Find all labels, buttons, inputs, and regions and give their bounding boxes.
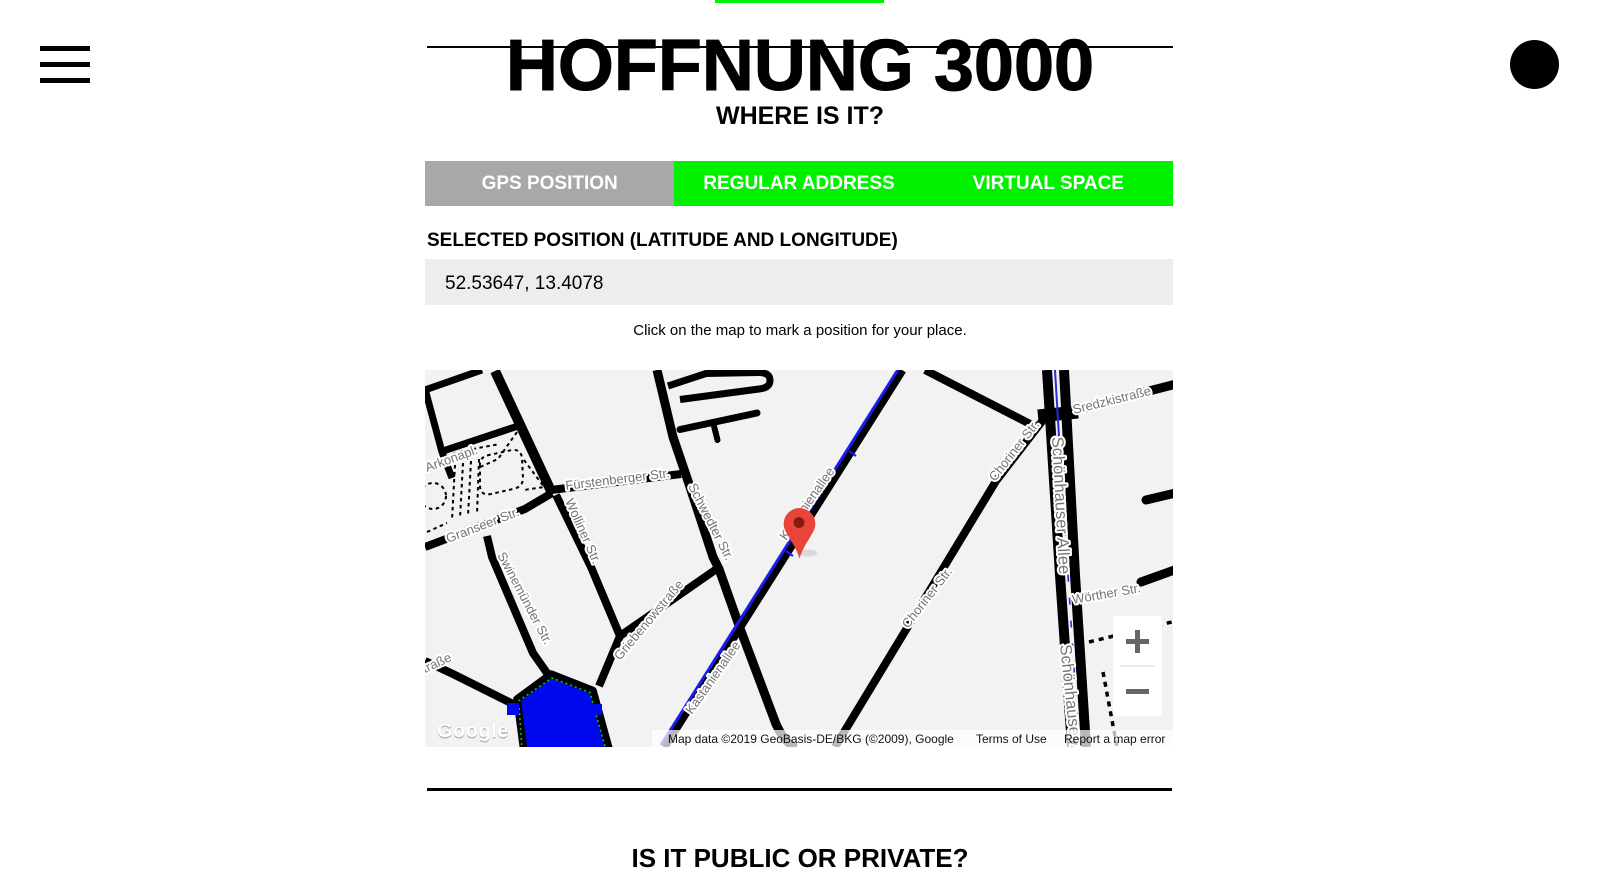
svg-text:Map data ©2019 GeoBasis-DE/BKG: Map data ©2019 GeoBasis-DE/BKG (©2009), … — [668, 732, 954, 746]
svg-text:Terms of Use: Terms of Use — [976, 732, 1047, 746]
svg-text:Report a map error: Report a map error — [1064, 732, 1165, 746]
svg-text:Google: Google — [437, 720, 509, 742]
